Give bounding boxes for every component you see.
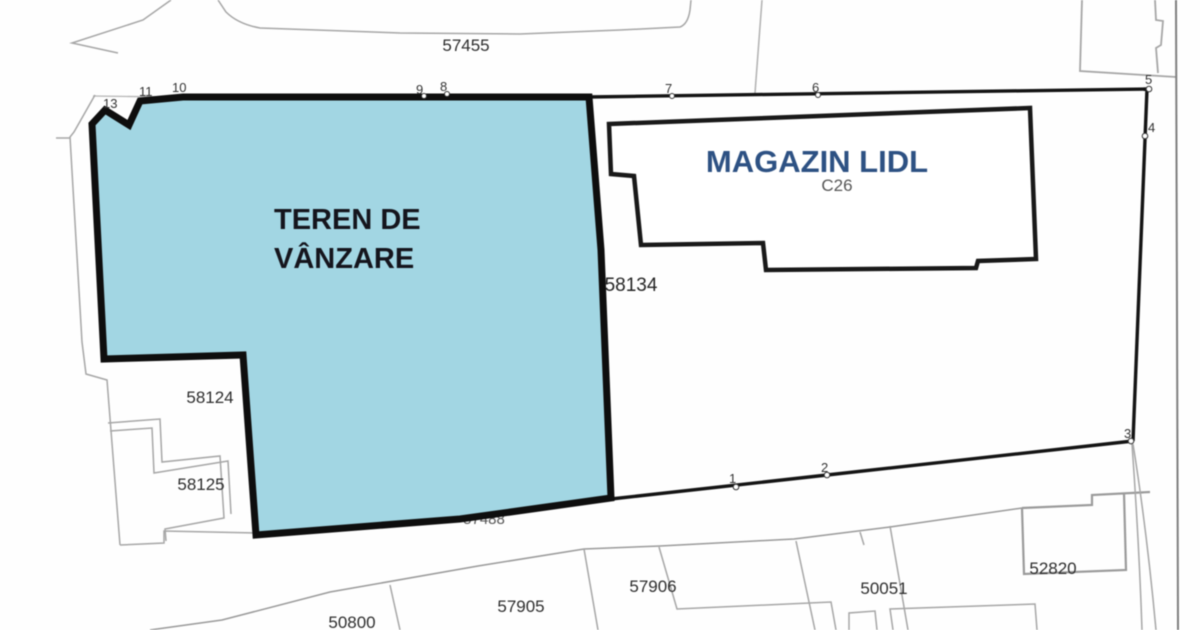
svg-text:VÂNZARE: VÂNZARE <box>274 241 414 275</box>
svg-text:57905: 57905 <box>497 597 544 616</box>
svg-text:10: 10 <box>172 80 186 95</box>
svg-text:58125: 58125 <box>177 475 224 494</box>
svg-text:57906: 57906 <box>629 577 676 596</box>
svg-text:C26: C26 <box>821 176 852 195</box>
svg-text:1: 1 <box>729 471 736 486</box>
svg-text:MAGAZIN LIDL: MAGAZIN LIDL <box>706 144 928 179</box>
svg-text:50800: 50800 <box>328 613 375 630</box>
svg-text:58134: 58134 <box>605 275 658 296</box>
svg-text:11: 11 <box>139 84 153 99</box>
svg-text:13: 13 <box>103 96 117 111</box>
svg-text:4: 4 <box>1148 120 1155 135</box>
svg-text:TEREN DE: TEREN DE <box>274 204 421 236</box>
svg-text:52820: 52820 <box>1029 559 1076 578</box>
svg-text:57455: 57455 <box>442 36 489 55</box>
svg-text:50051: 50051 <box>860 579 907 598</box>
svg-text:58124: 58124 <box>186 388 233 407</box>
svg-text:5: 5 <box>1145 72 1152 87</box>
